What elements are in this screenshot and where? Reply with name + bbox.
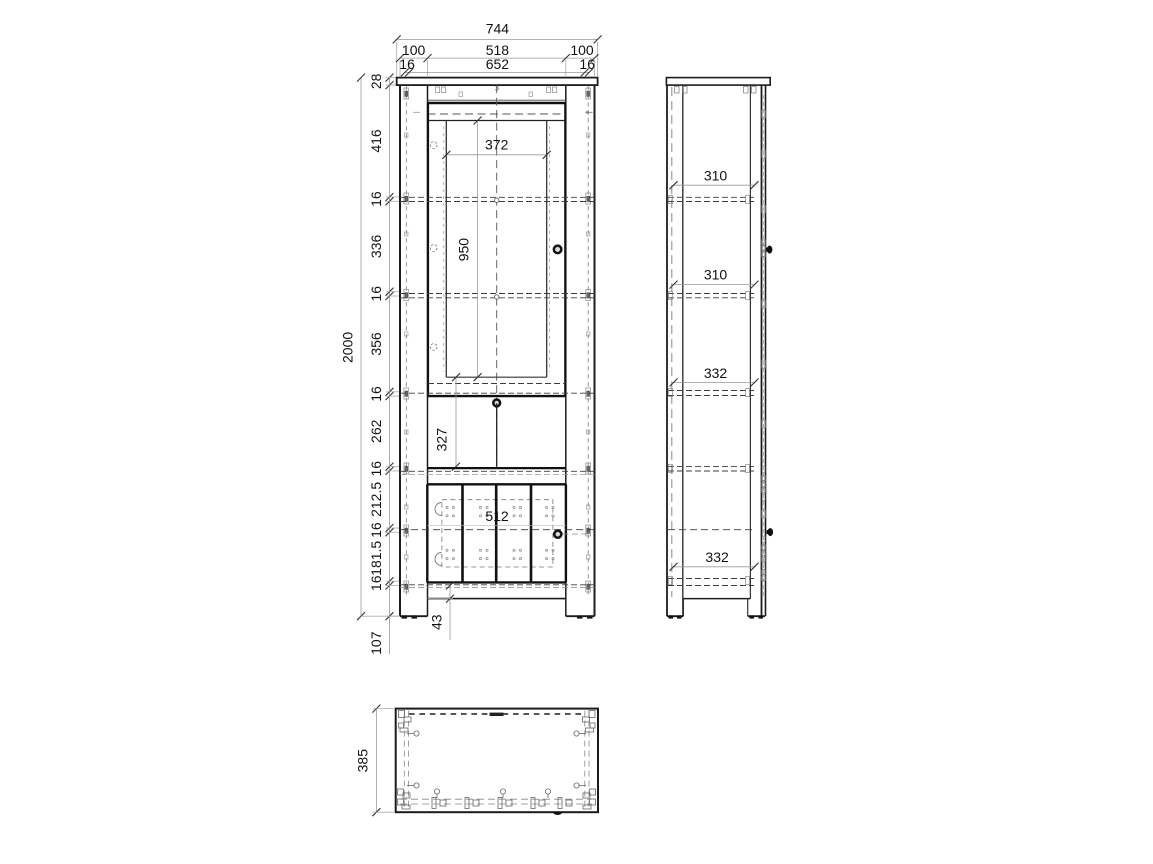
svg-text:744: 744 [486, 21, 510, 37]
svg-text:16: 16 [368, 575, 384, 591]
svg-text:332: 332 [705, 549, 729, 565]
svg-text:16: 16 [368, 522, 384, 538]
svg-text:16: 16 [368, 461, 384, 477]
svg-text:28: 28 [368, 73, 384, 89]
svg-text:107: 107 [368, 631, 384, 655]
svg-text:16: 16 [368, 286, 384, 302]
svg-text:385: 385 [354, 749, 370, 773]
svg-text:16: 16 [579, 56, 595, 72]
svg-text:332: 332 [704, 365, 728, 381]
svg-text:212.5: 212.5 [368, 482, 384, 517]
svg-text:2000: 2000 [339, 332, 355, 363]
svg-text:327: 327 [434, 428, 450, 452]
svg-text:310: 310 [704, 167, 728, 183]
svg-text:652: 652 [486, 56, 510, 72]
svg-text:372: 372 [485, 137, 509, 153]
svg-text:950: 950 [456, 238, 472, 262]
svg-text:356: 356 [368, 332, 384, 356]
svg-text:262: 262 [368, 419, 384, 443]
svg-text:310: 310 [704, 267, 728, 283]
svg-text:181.5: 181.5 [368, 541, 384, 576]
svg-text:43: 43 [429, 614, 445, 630]
svg-text:16: 16 [368, 191, 384, 207]
svg-text:16: 16 [399, 56, 415, 72]
svg-text:416: 416 [368, 129, 384, 153]
svg-text:16: 16 [368, 386, 384, 402]
svg-text:336: 336 [368, 235, 384, 259]
